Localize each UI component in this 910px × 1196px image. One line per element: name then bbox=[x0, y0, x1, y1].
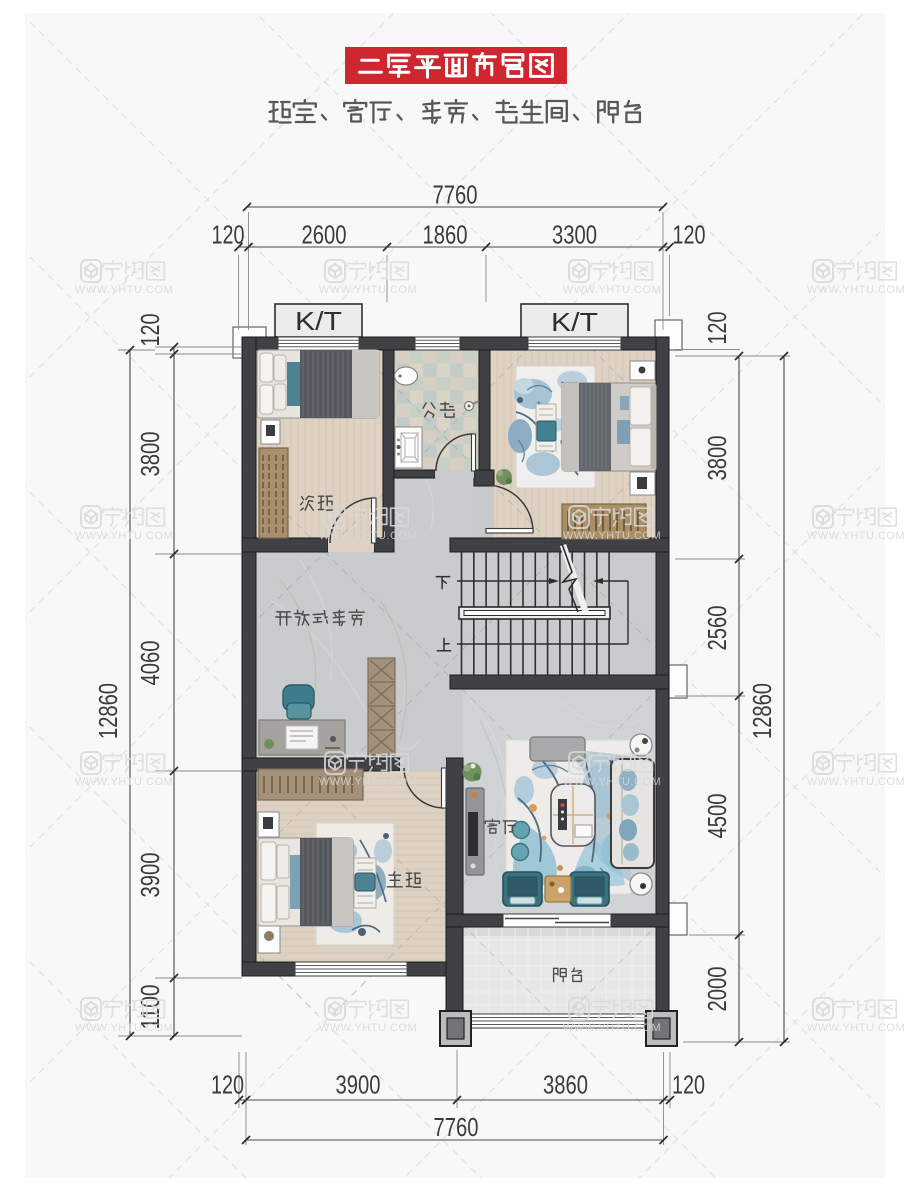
svg-text:WWW.YHTU.COM: WWW.YHTU.COM bbox=[807, 284, 905, 296]
svg-text:120: 120 bbox=[211, 1070, 244, 1100]
svg-text:WWW.YHTU.COM: WWW.YHTU.COM bbox=[75, 776, 173, 788]
svg-text:WWW.YHTU.COM: WWW.YHTU.COM bbox=[319, 776, 417, 788]
svg-text:WWW.YHTU.COM: WWW.YHTU.COM bbox=[563, 284, 661, 296]
svg-text:WWW.YHTU.COM: WWW.YHTU.COM bbox=[807, 1022, 905, 1034]
svg-text:12860: 12860 bbox=[93, 683, 123, 739]
svg-text:K/T: K/T bbox=[295, 306, 342, 336]
svg-text:3800: 3800 bbox=[135, 432, 165, 477]
svg-text:WWW.YHTU.COM: WWW.YHTU.COM bbox=[319, 530, 417, 542]
svg-text:120: 120 bbox=[135, 314, 165, 347]
svg-text:120: 120 bbox=[672, 1070, 705, 1100]
svg-text:3860: 3860 bbox=[543, 1070, 588, 1100]
svg-text:K/T: K/T bbox=[551, 307, 598, 337]
svg-text:120: 120 bbox=[212, 220, 245, 250]
svg-text:2000: 2000 bbox=[702, 967, 732, 1012]
svg-text:4060: 4060 bbox=[135, 641, 165, 686]
svg-text:WWW.YHTU.COM: WWW.YHTU.COM bbox=[75, 1022, 173, 1034]
svg-text:120: 120 bbox=[702, 312, 732, 345]
svg-text:2560: 2560 bbox=[702, 606, 732, 651]
svg-text:WWW.YHTU.COM: WWW.YHTU.COM bbox=[75, 530, 173, 542]
svg-text:WWW.YHTU.COM: WWW.YHTU.COM bbox=[563, 530, 661, 542]
svg-text:3800: 3800 bbox=[702, 436, 732, 481]
svg-text:WWW.YHTU.COM: WWW.YHTU.COM bbox=[563, 776, 661, 788]
svg-text:4500: 4500 bbox=[702, 794, 732, 839]
svg-text:WWW.YHTU.COM: WWW.YHTU.COM bbox=[75, 284, 173, 296]
svg-text:WWW.YHTU.COM: WWW.YHTU.COM bbox=[807, 776, 905, 788]
svg-text:3900: 3900 bbox=[135, 853, 165, 898]
svg-text:3900: 3900 bbox=[336, 1070, 381, 1100]
svg-text:WWW.YHTU.COM: WWW.YHTU.COM bbox=[319, 284, 417, 296]
svg-text:2600: 2600 bbox=[302, 220, 347, 250]
svg-text:7760: 7760 bbox=[434, 1112, 479, 1142]
svg-text:7760: 7760 bbox=[433, 180, 478, 210]
svg-text:WWW.YHTU.COM: WWW.YHTU.COM bbox=[319, 1022, 417, 1034]
svg-text:WWW.YHTU.COM: WWW.YHTU.COM bbox=[563, 1022, 661, 1034]
svg-text:12860: 12860 bbox=[747, 683, 777, 739]
svg-text:1860: 1860 bbox=[423, 220, 468, 250]
svg-text:3300: 3300 bbox=[552, 220, 597, 250]
svg-text:120: 120 bbox=[673, 220, 706, 250]
svg-text:WWW.YHTU.COM: WWW.YHTU.COM bbox=[807, 530, 905, 542]
